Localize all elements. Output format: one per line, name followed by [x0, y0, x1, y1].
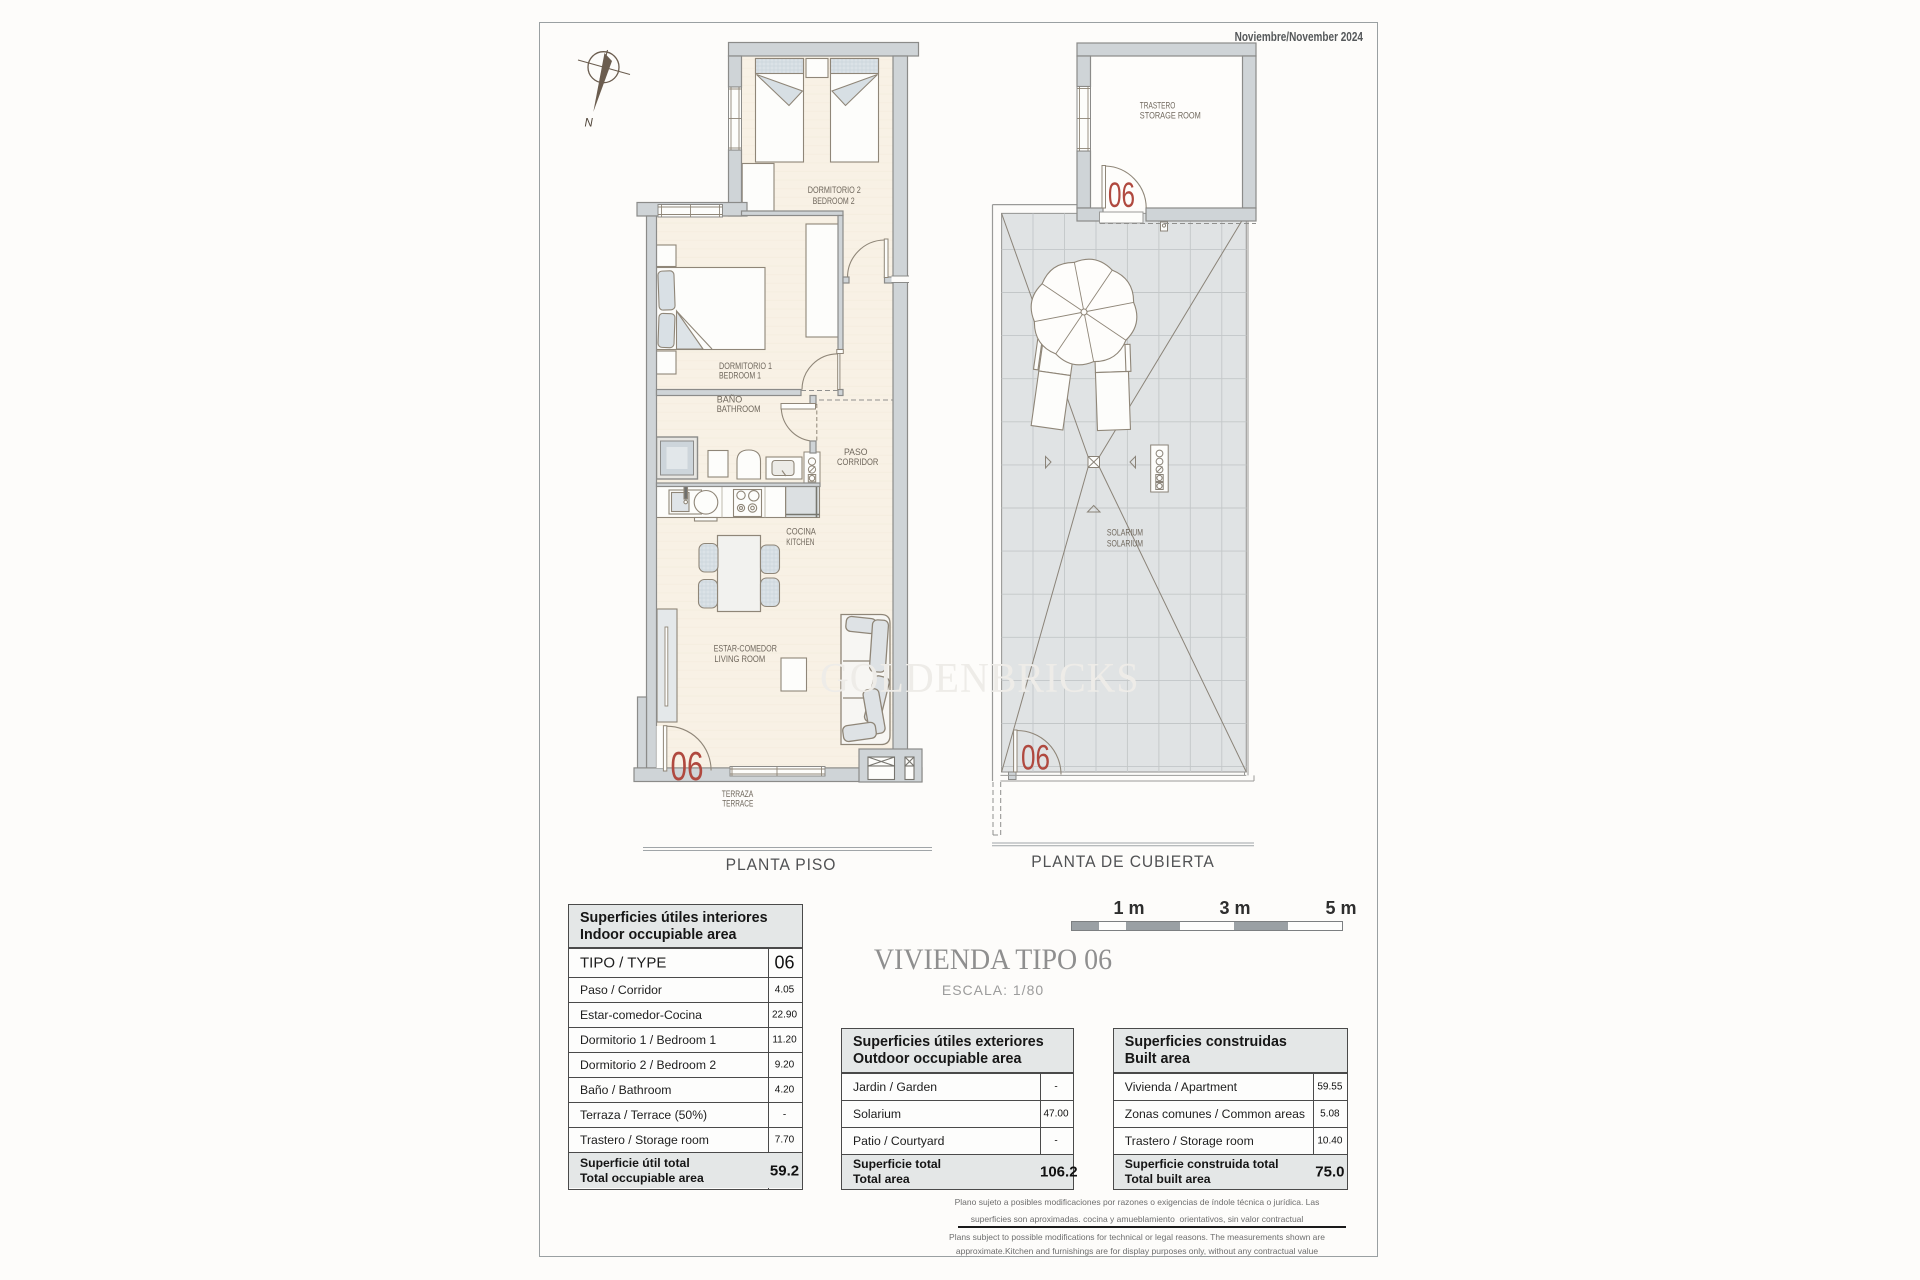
svg-text:BEDROOM 2: BEDROOM 2 [813, 196, 855, 206]
svg-text:BATHROOM: BATHROOM [717, 404, 761, 414]
svg-text:CORRIDOR: CORRIDOR [837, 457, 879, 467]
svg-text:DORMITORIO 2: DORMITORIO 2 [808, 185, 861, 195]
svg-text:N: N [585, 118, 594, 130]
svg-text:PASO: PASO [844, 447, 868, 457]
svg-text:06: 06 [671, 743, 704, 789]
svg-text:LIVING ROOM: LIVING ROOM [714, 654, 765, 664]
svg-text:COCINA: COCINA [786, 527, 816, 537]
svg-text:TRASTERO: TRASTERO [1140, 100, 1176, 110]
svg-text:ESTAR-COMEDOR: ESTAR-COMEDOR [714, 643, 778, 653]
svg-text:06: 06 [1021, 739, 1050, 778]
svg-text:BEDROOM 1: BEDROOM 1 [719, 370, 761, 380]
svg-text:TERRACE: TERRACE [722, 799, 753, 809]
svg-text:STORAGE ROOM: STORAGE ROOM [1140, 110, 1201, 120]
svg-text:SOLARIUM: SOLARIUM [1107, 528, 1143, 538]
svg-text:KITCHEN: KITCHEN [786, 537, 814, 547]
svg-text:SOLARIUM: SOLARIUM [1107, 538, 1143, 548]
svg-text:06: 06 [1108, 176, 1135, 215]
